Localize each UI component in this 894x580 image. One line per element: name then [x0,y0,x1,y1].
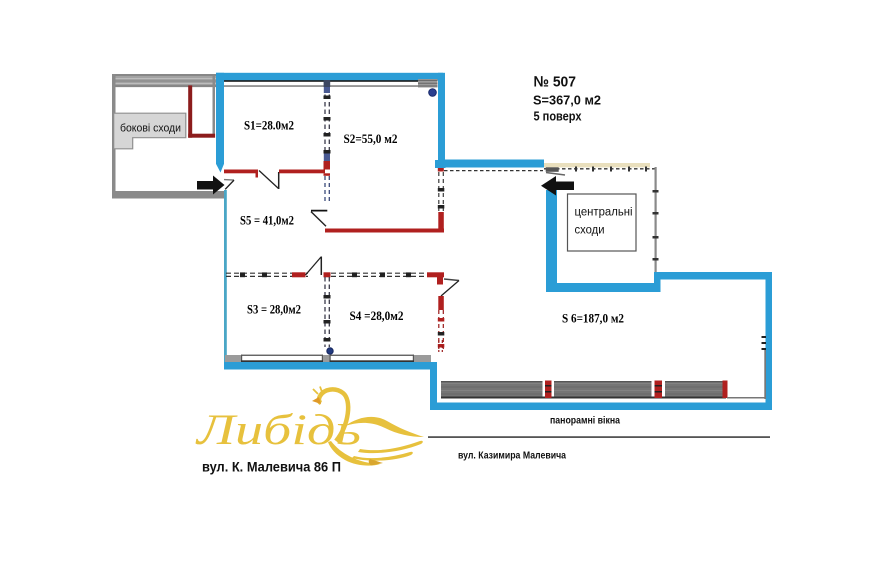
svg-text:S5 = 41,0м2: S5 = 41,0м2 [240,214,294,228]
svg-text:центральні: центральні [575,207,633,219]
svg-text:вул. К. Малевича 86 П: вул. К. Малевича 86 П [202,459,341,475]
svg-text:S1=28.0м2: S1=28.0м2 [244,119,294,133]
svg-text:вул. Казимира Малевича: вул. Казимира Малевича [458,450,566,462]
svg-text:панорамні вікна: панорамні вікна [550,416,620,427]
svg-text:сходи: сходи [575,225,605,237]
svg-text:S=367,0 м2: S=367,0 м2 [533,93,601,108]
svg-text:№ 507: № 507 [534,74,577,91]
svg-text:бокові сходи: бокові сходи [120,123,181,135]
svg-text:S 6=187,0 м2: S 6=187,0 м2 [562,312,624,326]
svg-text:5 поверх: 5 поверх [534,109,583,124]
svg-text:S2=55,0 м2: S2=55,0 м2 [344,132,398,146]
svg-text:S3 = 28,0м2: S3 = 28,0м2 [247,303,301,317]
svg-text:S4 =28,0м2: S4 =28,0м2 [350,309,404,323]
